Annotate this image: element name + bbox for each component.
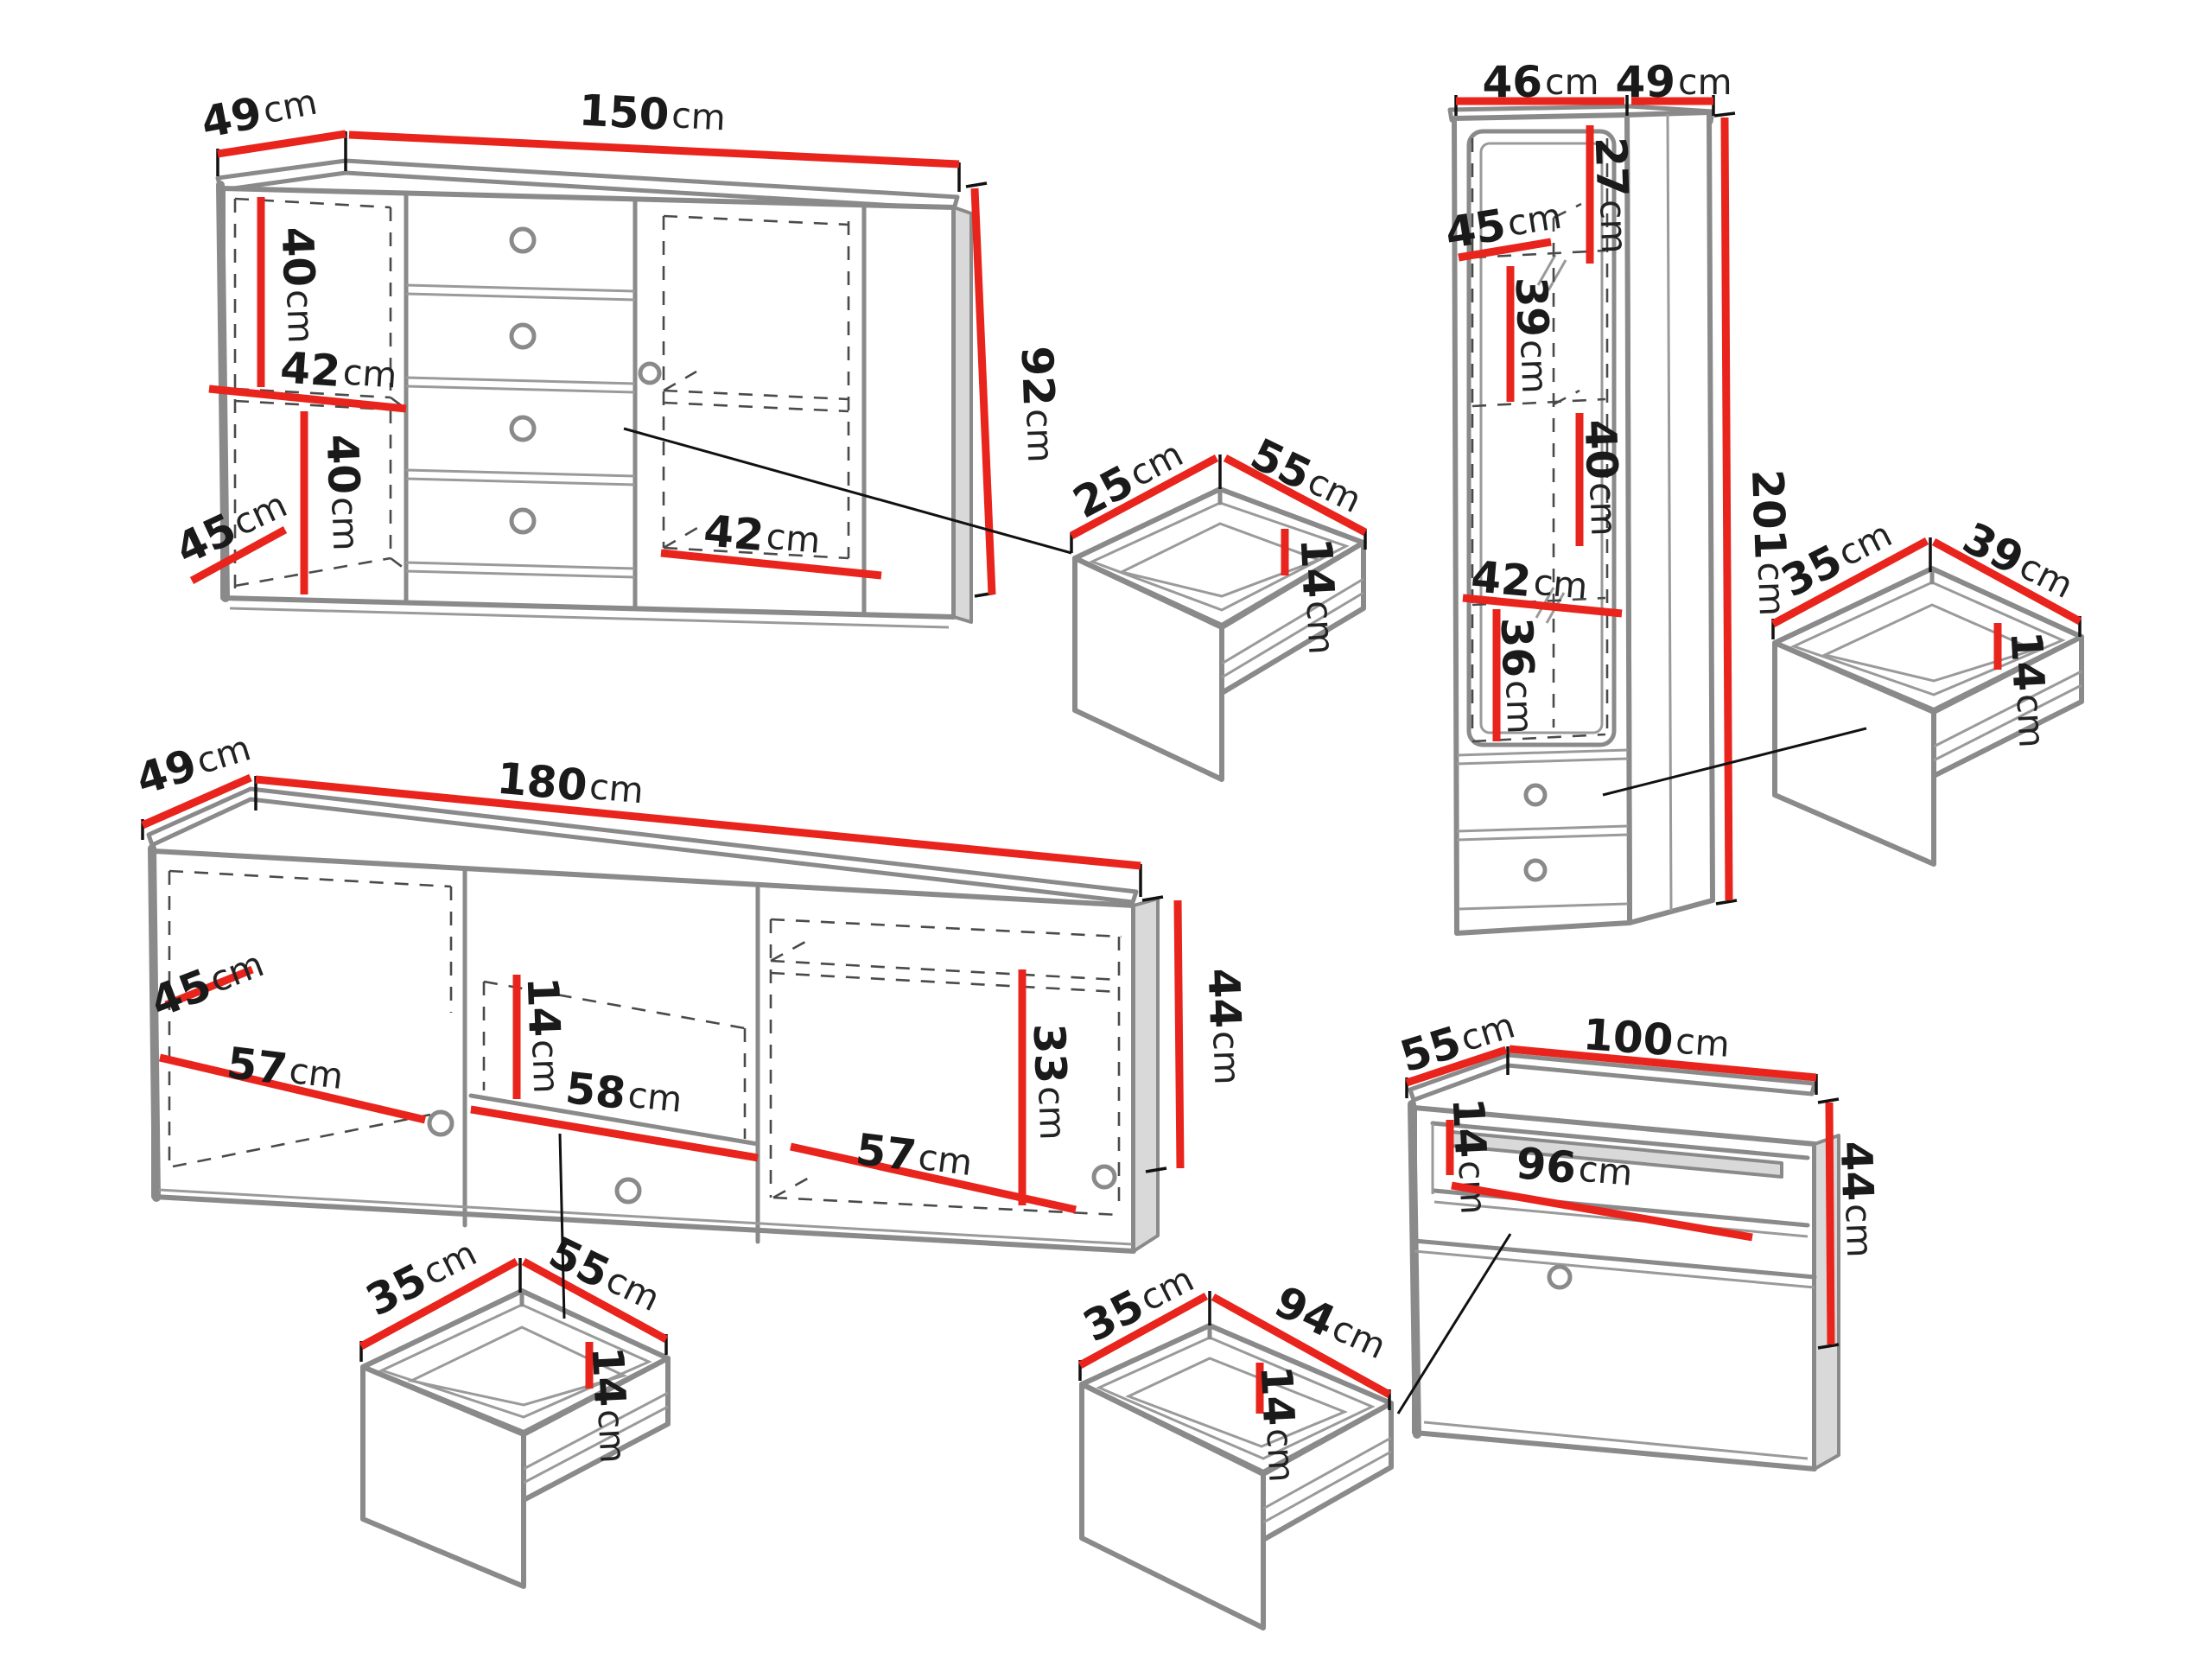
- dimension-label-40cm: 40cm: [317, 433, 372, 551]
- low-cabinet: 55cm100cm44cm14cm96cm: [1395, 1001, 1885, 1469]
- dimension-label-14cm: 14cm: [518, 976, 572, 1094]
- dimension-label-150cm: 150cm: [578, 86, 728, 143]
- drawer-35x39: 35cm39cm14cm: [1773, 509, 2082, 864]
- dimension-line-44cm: [1829, 1103, 1831, 1344]
- dimension-tick: [966, 183, 987, 187]
- tv-stand: 49cm180cm44cm45cm57cm14cm58cm33cm57cm: [130, 723, 1252, 1251]
- tall-display-cabinet: 46cm49cm201cm27cm45cm39cm40cm42cm36cm: [1442, 57, 1797, 933]
- dimension-line-201cm: [1725, 118, 1729, 900]
- dimension-label-44cm: 44cm: [1198, 967, 1253, 1085]
- dimension-label-201cm: 201cm: [1742, 468, 1797, 617]
- tv-stand-right-side: [1134, 899, 1158, 1251]
- dimension-label-40cm: 40cm: [1575, 418, 1630, 537]
- furniture-dimensions-diagram: 49cm150cm92cm40cm42cm40cm45cm42cm: [0, 0, 2212, 1659]
- drawer-25x55: 25cm55cm14cm: [1065, 429, 1370, 779]
- dimension-tick: [1714, 113, 1735, 116]
- dimension-tick: [1142, 897, 1163, 900]
- sideboard-right-side: [954, 207, 971, 622]
- sideboard: 49cm150cm92cm40cm42cm40cm45cm42cm: [168, 77, 1066, 627]
- dimension-line-92cm: [975, 188, 992, 594]
- dimension-label-100cm: 100cm: [1581, 1009, 1731, 1070]
- dimension-label-36cm: 36cm: [1491, 616, 1546, 734]
- dimension-label-44cm: 44cm: [1831, 1140, 1885, 1258]
- tv-stand-body: [149, 789, 1158, 1251]
- dimension-tick: [1716, 900, 1737, 904]
- dimension-line-44cm: [1178, 900, 1180, 1168]
- dimension-label-39cm: 39cm: [1506, 276, 1560, 394]
- dimension-label-27cm: 27cm: [1586, 136, 1640, 254]
- dimension-label-46cm: 46cm: [1482, 57, 1599, 107]
- low-cabinet-knob: [1549, 1267, 1570, 1287]
- dimension-label-40cm: 40cm: [272, 226, 327, 344]
- dimension-label-92cm: 92cm: [1012, 345, 1066, 463]
- drawer-35x94: 35cm94cm14cm: [1076, 1254, 1395, 1628]
- dimension-label-33cm: 33cm: [1024, 1022, 1078, 1141]
- dimension-tick: [1818, 1099, 1839, 1103]
- drawer-35x55: 35cm55cm14cm: [359, 1227, 669, 1586]
- dimension-label-49cm: 49cm: [1615, 57, 1732, 107]
